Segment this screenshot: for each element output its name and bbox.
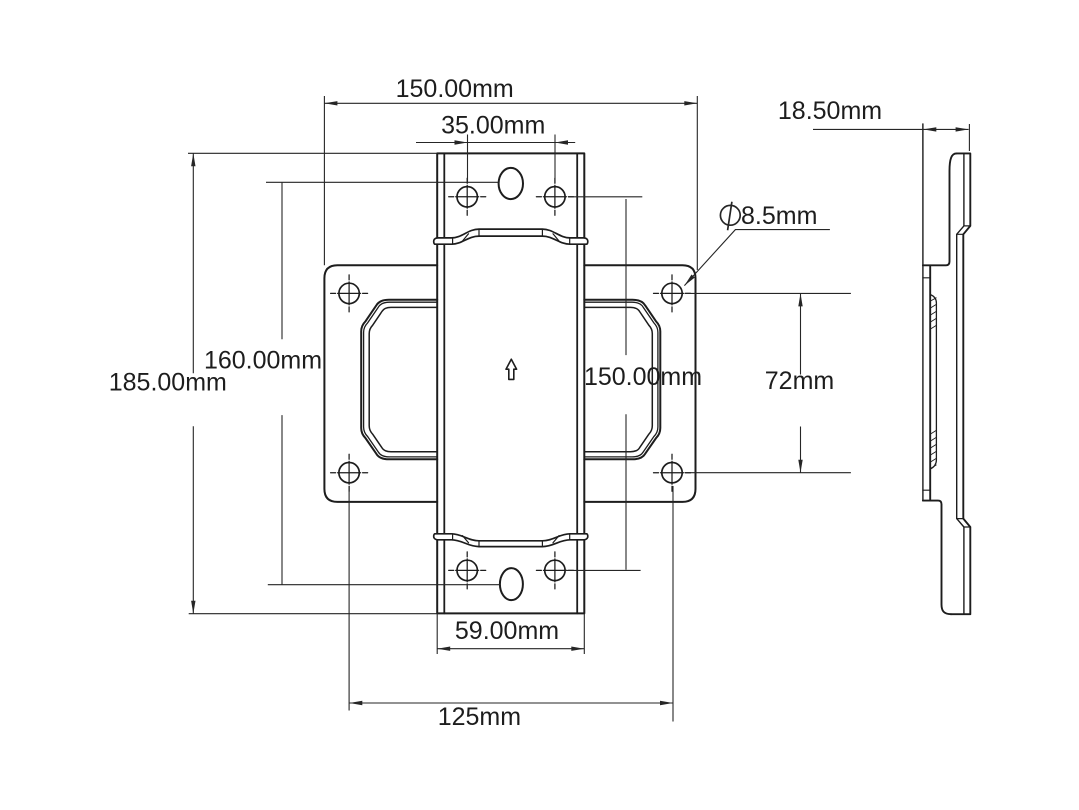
svg-text:8.5mm: 8.5mm: [741, 202, 817, 230]
svg-text:150.00mm: 150.00mm: [396, 75, 514, 103]
svg-text:59.00mm: 59.00mm: [455, 617, 559, 645]
svg-text:35.00mm: 35.00mm: [441, 111, 545, 139]
svg-text:125mm: 125mm: [438, 703, 521, 731]
svg-text:150.00mm: 150.00mm: [584, 363, 702, 391]
svg-text:72mm: 72mm: [765, 367, 834, 395]
svg-text:18.50mm: 18.50mm: [778, 97, 882, 125]
svg-text:185.00mm: 185.00mm: [109, 369, 227, 397]
